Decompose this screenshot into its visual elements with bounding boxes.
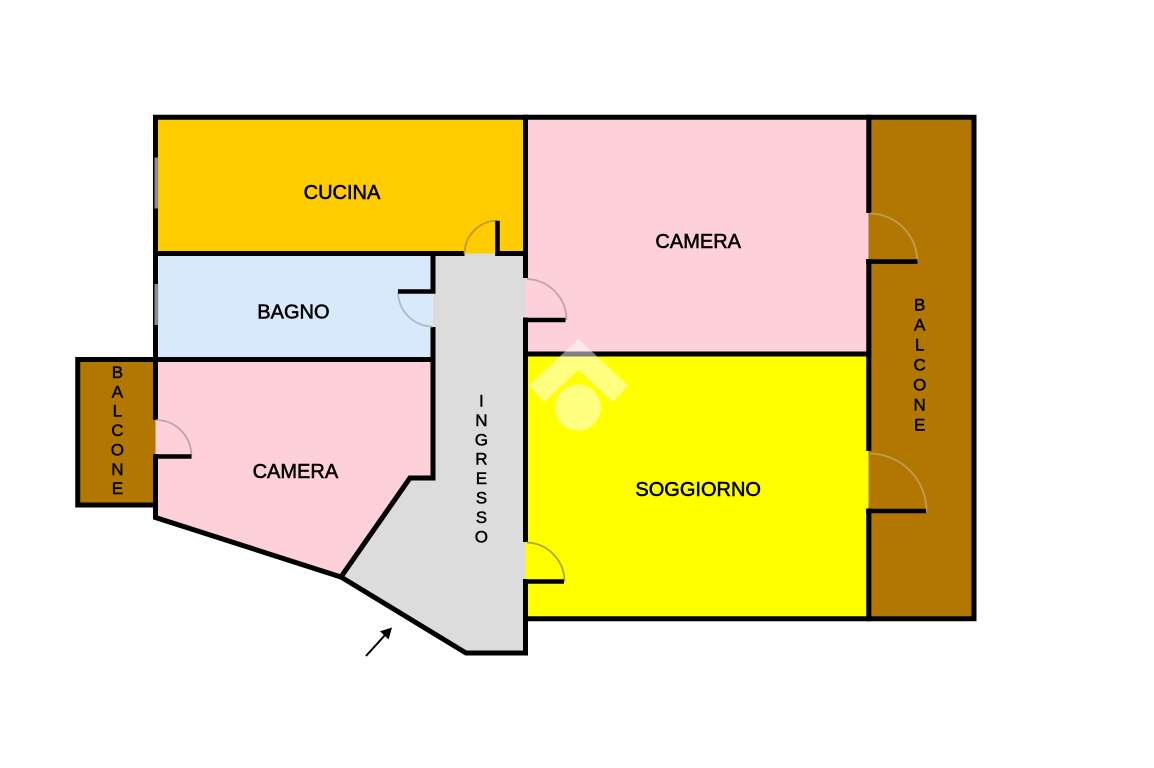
svg-text:O: O: [913, 376, 926, 395]
svg-text:CAMERA: CAMERA: [253, 461, 339, 483]
svg-text:S: S: [476, 489, 487, 508]
svg-text:C: C: [914, 356, 926, 375]
svg-text:L: L: [113, 402, 122, 421]
svg-text:C: C: [111, 421, 123, 440]
svg-text:R: R: [475, 450, 487, 469]
svg-text:E: E: [112, 479, 123, 498]
svg-text:I: I: [479, 391, 484, 410]
svg-text:O: O: [111, 440, 124, 459]
svg-text:CAMERA: CAMERA: [655, 231, 741, 253]
svg-text:S: S: [476, 508, 487, 527]
svg-text:E: E: [476, 469, 487, 488]
svg-text:A: A: [112, 382, 124, 401]
svg-text:SOGGIORNO: SOGGIORNO: [635, 479, 761, 501]
svg-text:N: N: [914, 396, 926, 415]
svg-text:A: A: [914, 316, 926, 335]
svg-text:B: B: [914, 296, 925, 315]
svg-text:E: E: [914, 416, 925, 435]
svg-text:CUCINA: CUCINA: [304, 182, 381, 204]
svg-text:G: G: [475, 430, 488, 449]
svg-text:B: B: [112, 363, 123, 382]
svg-text:L: L: [915, 336, 924, 355]
svg-text:O: O: [475, 528, 488, 547]
svg-text:N: N: [475, 411, 487, 430]
svg-text:BAGNO: BAGNO: [257, 302, 329, 324]
svg-text:N: N: [111, 460, 123, 479]
